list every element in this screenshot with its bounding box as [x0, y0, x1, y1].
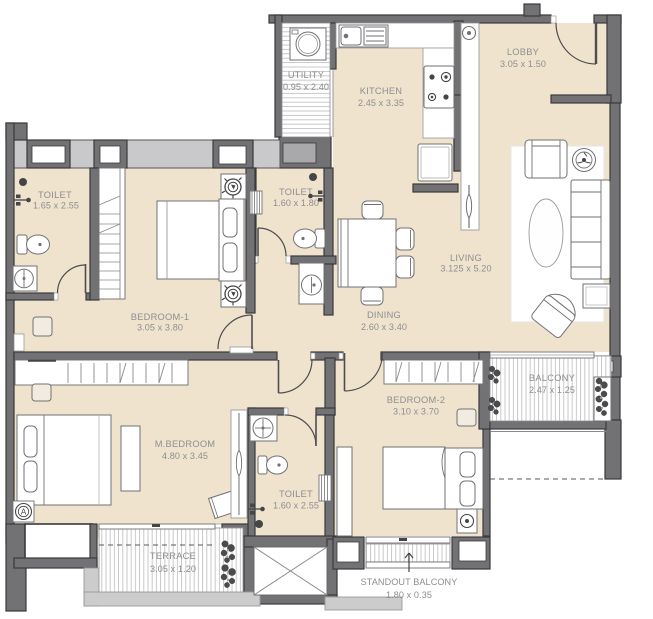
svg-text:1.60 x 2.55: 1.60 x 2.55: [273, 501, 319, 511]
svg-text:TOILET: TOILET: [279, 489, 313, 499]
svg-text:4.80 x 3.45: 4.80 x 3.45: [162, 451, 208, 461]
svg-text:BEDROOM-2: BEDROOM-2: [387, 395, 446, 405]
svg-text:STANDOUT BALCONY: STANDOUT BALCONY: [361, 577, 458, 587]
svg-text:1.60 x 1.80: 1.60 x 1.80: [273, 198, 319, 208]
svg-text:1.80 x 0.35: 1.80 x 0.35: [386, 590, 432, 600]
svg-text:2.45 x 3.35: 2.45 x 3.35: [358, 98, 404, 108]
svg-text:BALCONY: BALCONY: [529, 373, 575, 383]
svg-text:2.47 x 1.25: 2.47 x 1.25: [529, 385, 575, 395]
svg-text:3.125 x 5.20: 3.125 x 5.20: [440, 264, 491, 274]
svg-text:3.10 x 3.70: 3.10 x 3.70: [393, 407, 439, 417]
svg-text:A: A: [21, 508, 27, 517]
svg-text:M.BEDROOM: M.BEDROOM: [155, 439, 216, 449]
svg-text:UTILITY: UTILITY: [288, 70, 324, 80]
svg-text:1.65 x 2.55: 1.65 x 2.55: [33, 201, 79, 211]
svg-text:BEDROOM-1: BEDROOM-1: [131, 312, 190, 322]
svg-text:2.60 x 3.40: 2.60 x 3.40: [361, 322, 407, 332]
svg-text:KITCHEN: KITCHEN: [360, 86, 403, 96]
svg-text:LIVING: LIVING: [450, 253, 482, 263]
svg-text:TOILET: TOILET: [38, 190, 72, 200]
svg-text:DINING: DINING: [367, 310, 401, 320]
svg-text:TOILET: TOILET: [279, 187, 313, 197]
svg-text:LOBBY: LOBBY: [507, 47, 539, 57]
svg-text:3.05 x 1.50: 3.05 x 1.50: [500, 59, 546, 69]
svg-text:3.05 x 3.80: 3.05 x 3.80: [137, 323, 183, 333]
svg-text:TERRACE: TERRACE: [150, 551, 196, 561]
svg-text:0.95 x 2.40: 0.95 x 2.40: [283, 82, 329, 92]
svg-text:3.05 x 1.20: 3.05 x 1.20: [150, 564, 196, 574]
